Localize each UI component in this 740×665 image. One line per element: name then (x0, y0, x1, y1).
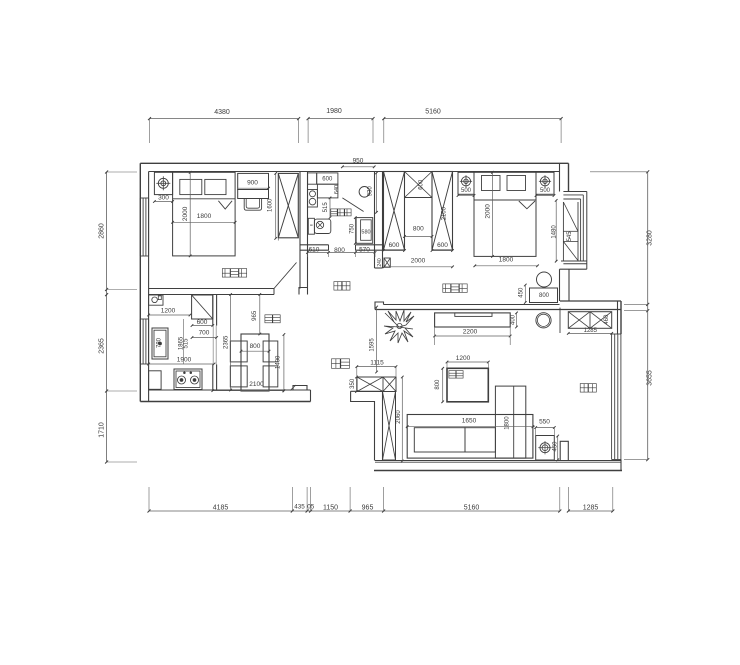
svg-text:1600: 1600 (267, 198, 273, 212)
svg-text:780: 780 (156, 337, 162, 348)
svg-text:460: 460 (604, 314, 610, 325)
svg-text:515: 515 (183, 338, 189, 349)
svg-text:4185: 4185 (213, 504, 229, 511)
svg-text:550: 550 (539, 419, 550, 426)
svg-text:1980: 1980 (326, 108, 342, 115)
svg-text:300: 300 (158, 195, 169, 202)
svg-text:1480: 1480 (551, 225, 557, 239)
svg-text:640: 640 (334, 185, 340, 194)
svg-text:700: 700 (199, 330, 210, 337)
svg-text:545: 545 (567, 231, 573, 242)
svg-text:1150: 1150 (323, 504, 338, 511)
svg-text:800: 800 (413, 226, 424, 233)
svg-text:400: 400 (510, 314, 516, 325)
svg-text:2100: 2100 (442, 206, 448, 220)
svg-text:2100: 2100 (249, 381, 264, 388)
svg-text:4380: 4380 (214, 109, 230, 116)
svg-text:1800: 1800 (197, 213, 212, 220)
svg-text:1285: 1285 (583, 504, 599, 511)
svg-text:1200: 1200 (456, 355, 471, 362)
svg-text:800: 800 (334, 247, 345, 254)
svg-text:1200: 1200 (161, 307, 176, 314)
svg-text:1900: 1900 (177, 357, 192, 364)
svg-text:800: 800 (539, 293, 550, 299)
svg-text:600: 600 (197, 319, 208, 326)
svg-text:1650: 1650 (462, 418, 477, 425)
svg-text:2000: 2000 (182, 206, 189, 221)
svg-text:5160: 5160 (425, 108, 441, 115)
svg-text:350: 350 (350, 378, 356, 389)
svg-text:1400: 1400 (275, 355, 281, 369)
svg-text:600: 600 (389, 242, 400, 249)
svg-text:1800: 1800 (504, 416, 510, 430)
svg-text:1595: 1595 (369, 338, 375, 352)
svg-text:2365: 2365 (223, 335, 229, 349)
svg-text:240: 240 (377, 258, 383, 267)
svg-text:1800: 1800 (499, 257, 514, 264)
svg-text:1115: 1115 (370, 360, 384, 367)
svg-text:800: 800 (250, 343, 261, 350)
svg-text:435: 435 (294, 504, 305, 511)
svg-text:2060: 2060 (396, 410, 402, 424)
svg-text:450: 450 (518, 287, 524, 298)
svg-text:2200: 2200 (463, 329, 478, 336)
svg-text:2000: 2000 (411, 258, 426, 265)
svg-text:750: 750 (349, 223, 355, 234)
svg-text:2860: 2860 (99, 223, 106, 239)
svg-text:600: 600 (437, 242, 448, 249)
svg-text:515: 515 (323, 202, 329, 213)
svg-text:500: 500 (540, 188, 551, 194)
svg-text:1710: 1710 (99, 422, 106, 438)
svg-text:965: 965 (252, 310, 258, 321)
svg-text:800: 800 (435, 379, 441, 390)
svg-text:580: 580 (361, 230, 370, 236)
svg-text:500: 500 (461, 188, 472, 194)
svg-text:600: 600 (418, 179, 424, 190)
svg-text:2365: 2365 (99, 338, 106, 354)
svg-text:950: 950 (353, 158, 364, 165)
svg-text:2000: 2000 (484, 204, 491, 219)
svg-text:900: 900 (247, 180, 258, 187)
svg-text:930: 930 (367, 186, 373, 197)
svg-text:965: 965 (362, 504, 374, 511)
svg-text:5160: 5160 (464, 504, 480, 511)
svg-text:1285: 1285 (584, 328, 598, 334)
svg-text:600: 600 (322, 176, 333, 182)
